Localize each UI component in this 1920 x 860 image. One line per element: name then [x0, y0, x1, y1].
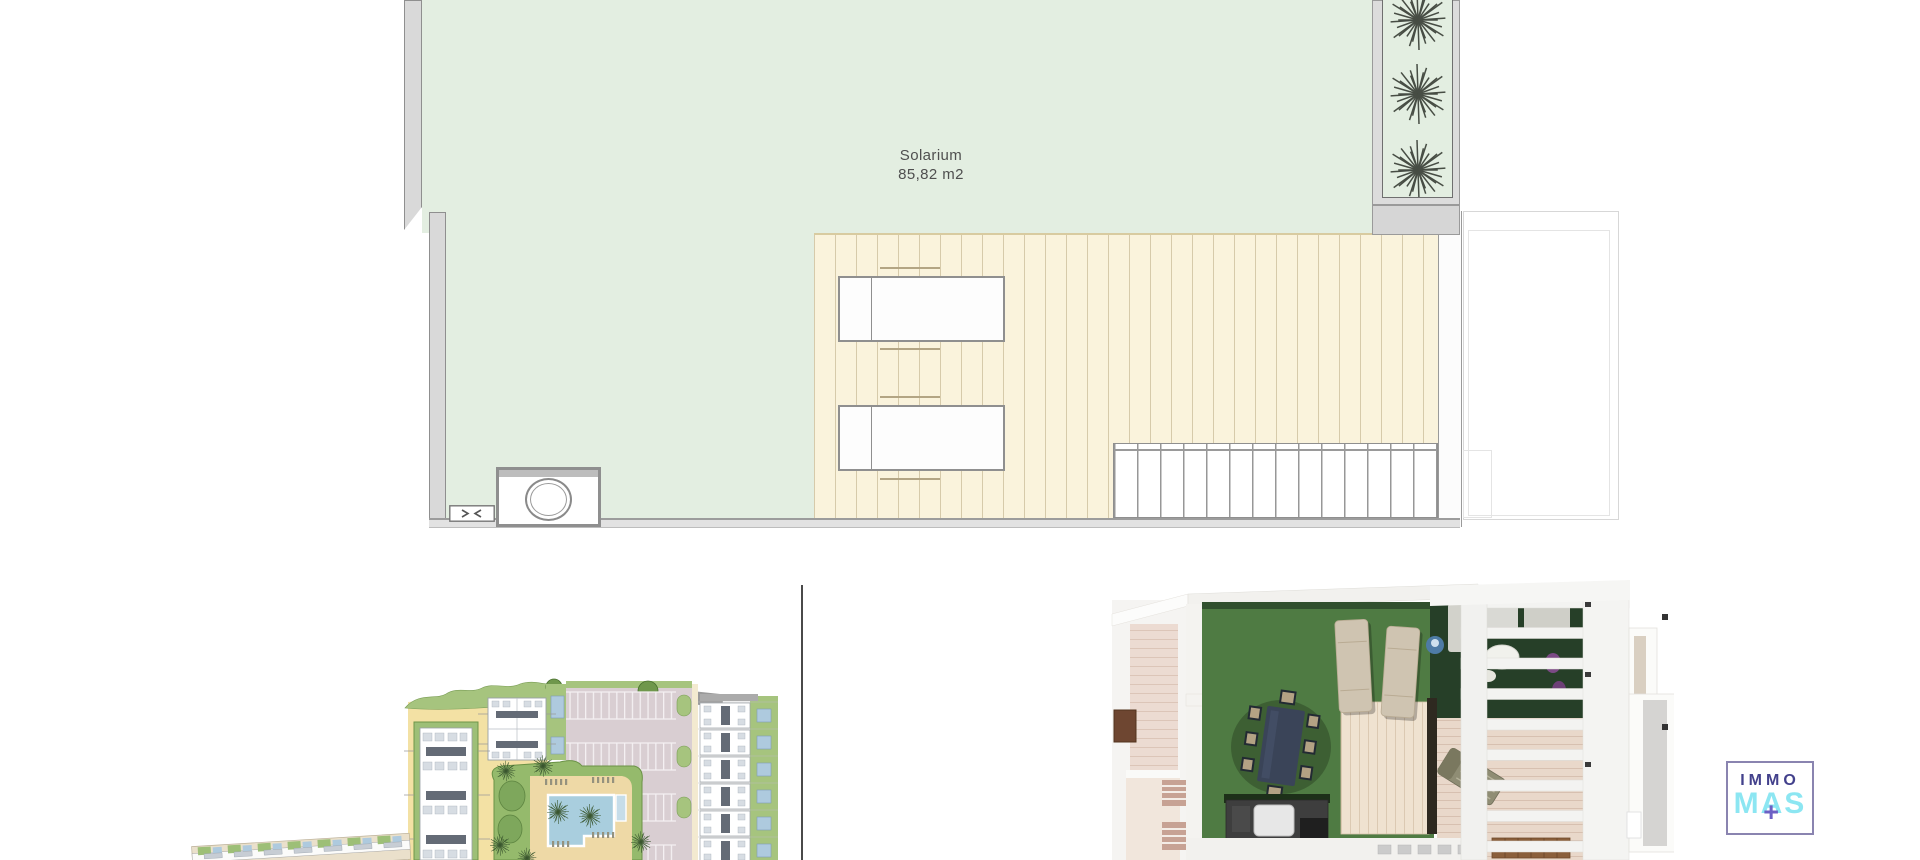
pergola-louvers	[1113, 443, 1438, 518]
detail-blue	[551, 696, 564, 718]
plus-icon: +	[1763, 797, 1779, 828]
deck-joint-line	[880, 348, 940, 350]
pergola-rail-right	[1583, 582, 1629, 860]
neighbor-structures-right	[1627, 614, 1674, 852]
kids-pool	[616, 795, 626, 821]
site-plan	[188, 578, 806, 860]
left-wall-lower	[429, 212, 446, 525]
pool-islet	[499, 781, 525, 811]
sun-lounger-icon	[1335, 619, 1376, 716]
plan-sheet: Solarium 85,82 m2	[0, 0, 1920, 860]
hedge-strip	[1427, 698, 1437, 834]
door-arrows-icon	[449, 505, 495, 522]
deck-joint-line	[880, 267, 940, 269]
garden-wall-bottom	[1186, 838, 1478, 860]
solarium-floor-plan: Solarium 85,82 m2	[0, 0, 1920, 540]
hedge-top	[1202, 602, 1434, 609]
lounger-headrest	[871, 407, 872, 469]
plant-icon	[1386, 138, 1450, 198]
pool-area	[490, 755, 651, 860]
detail-blue	[551, 737, 564, 754]
lounger-headrest	[871, 278, 872, 340]
section-divider-line	[801, 585, 803, 860]
right-wall	[1438, 211, 1462, 527]
planter-bed	[1382, 0, 1453, 198]
garden-wall-left	[1186, 604, 1202, 860]
planter-base	[1372, 205, 1460, 235]
deck-joint-line	[880, 396, 940, 398]
site-walkway	[692, 684, 698, 860]
solarium-floor	[422, 0, 1372, 233]
sun-lounger-icon	[838, 405, 1005, 471]
neighbor-terrace-left	[1112, 594, 1190, 860]
render-3d	[1108, 578, 1674, 860]
bbq-grill-icon	[1224, 794, 1330, 840]
jacuzzi-inner-ring	[530, 483, 567, 516]
center-deck	[1341, 702, 1429, 834]
brand-logo: IMMO MAS +	[1726, 761, 1814, 835]
alcove-hatch	[499, 470, 598, 477]
planter-box	[1372, 0, 1460, 205]
sun-lounger-icon	[1381, 626, 1423, 721]
pergola-rail-left	[1461, 590, 1487, 860]
jacuzzi-icon	[525, 478, 572, 521]
plant-icon	[1386, 0, 1450, 52]
door-icon	[1114, 710, 1136, 742]
plant-icon	[1386, 62, 1450, 126]
pergola-edge-line	[1114, 449, 1437, 451]
sun-lounger-icon	[838, 276, 1005, 342]
neighbor-unit-corner-box	[1463, 450, 1492, 518]
site-townhouses-left	[404, 722, 490, 860]
site-townhouses-bottom	[192, 833, 411, 860]
room-label: Solarium	[851, 146, 1011, 165]
room-area: 85,82 m2	[851, 165, 1011, 184]
left-wall-upper	[404, 0, 422, 230]
room-label-block: Solarium 85,82 m2	[851, 146, 1011, 184]
deck-joint-line	[880, 478, 940, 480]
